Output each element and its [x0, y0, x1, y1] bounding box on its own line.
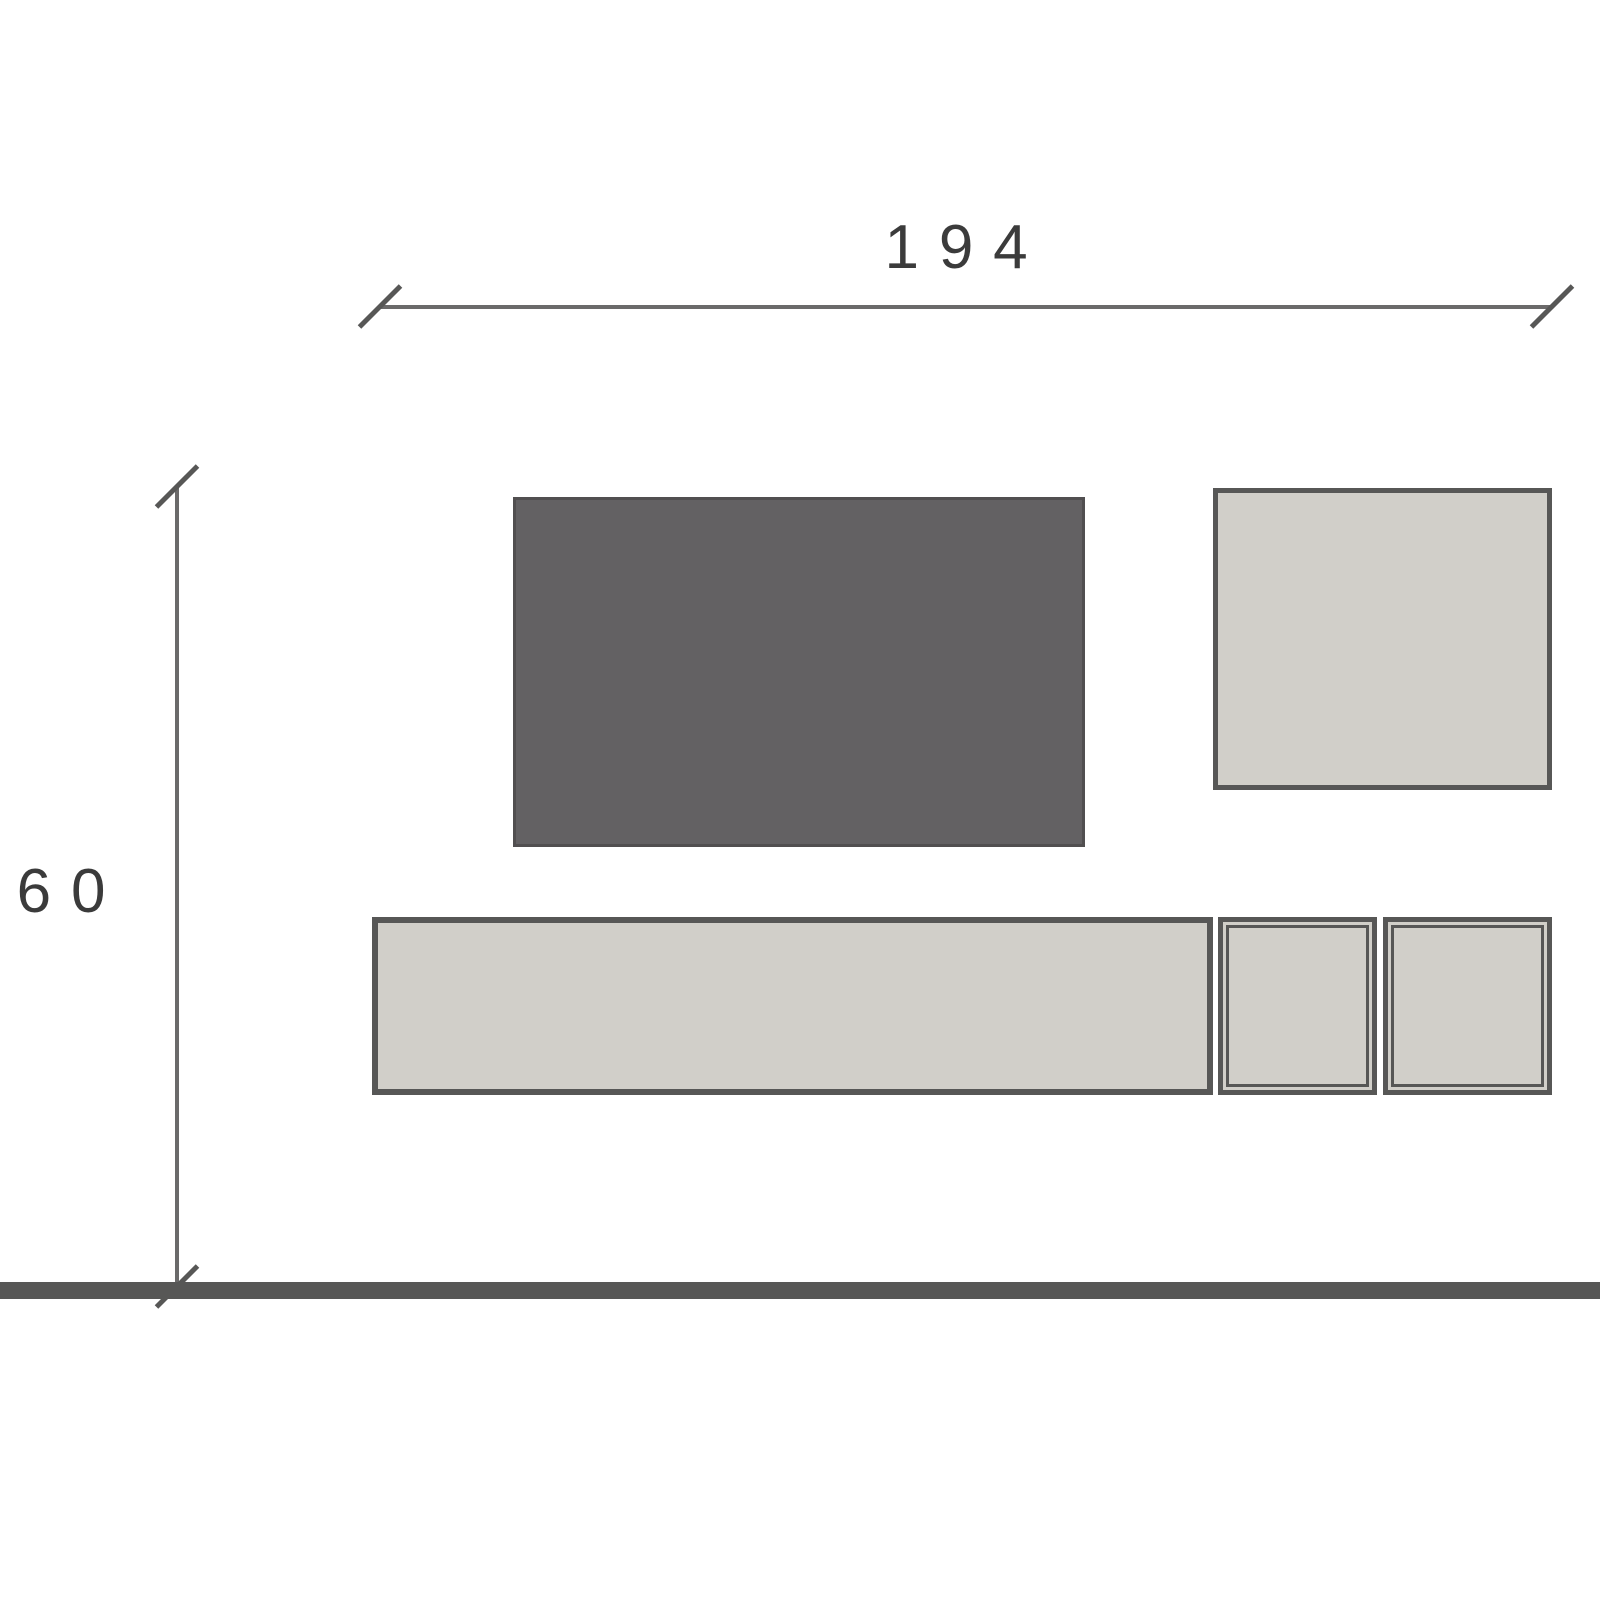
width-dimension-label: 194: [866, 212, 1066, 283]
height-dimension-line: [175, 487, 179, 1290]
cube-unit-2-inner-frame: [1391, 925, 1544, 1087]
width-dimension-line: [380, 305, 1552, 309]
dark-wall-panel: [513, 497, 1085, 847]
cube-unit-2: [1383, 917, 1552, 1095]
cube-unit-1-inner-frame: [1226, 925, 1369, 1087]
elevation-drawing: 194 60: [0, 0, 1600, 1600]
wall-cabinet: [1213, 488, 1552, 790]
height-dimension-label: 60: [0, 856, 142, 927]
floor-line: [0, 1282, 1600, 1299]
cube-unit-1: [1218, 917, 1377, 1095]
long-base-unit: [372, 917, 1213, 1095]
